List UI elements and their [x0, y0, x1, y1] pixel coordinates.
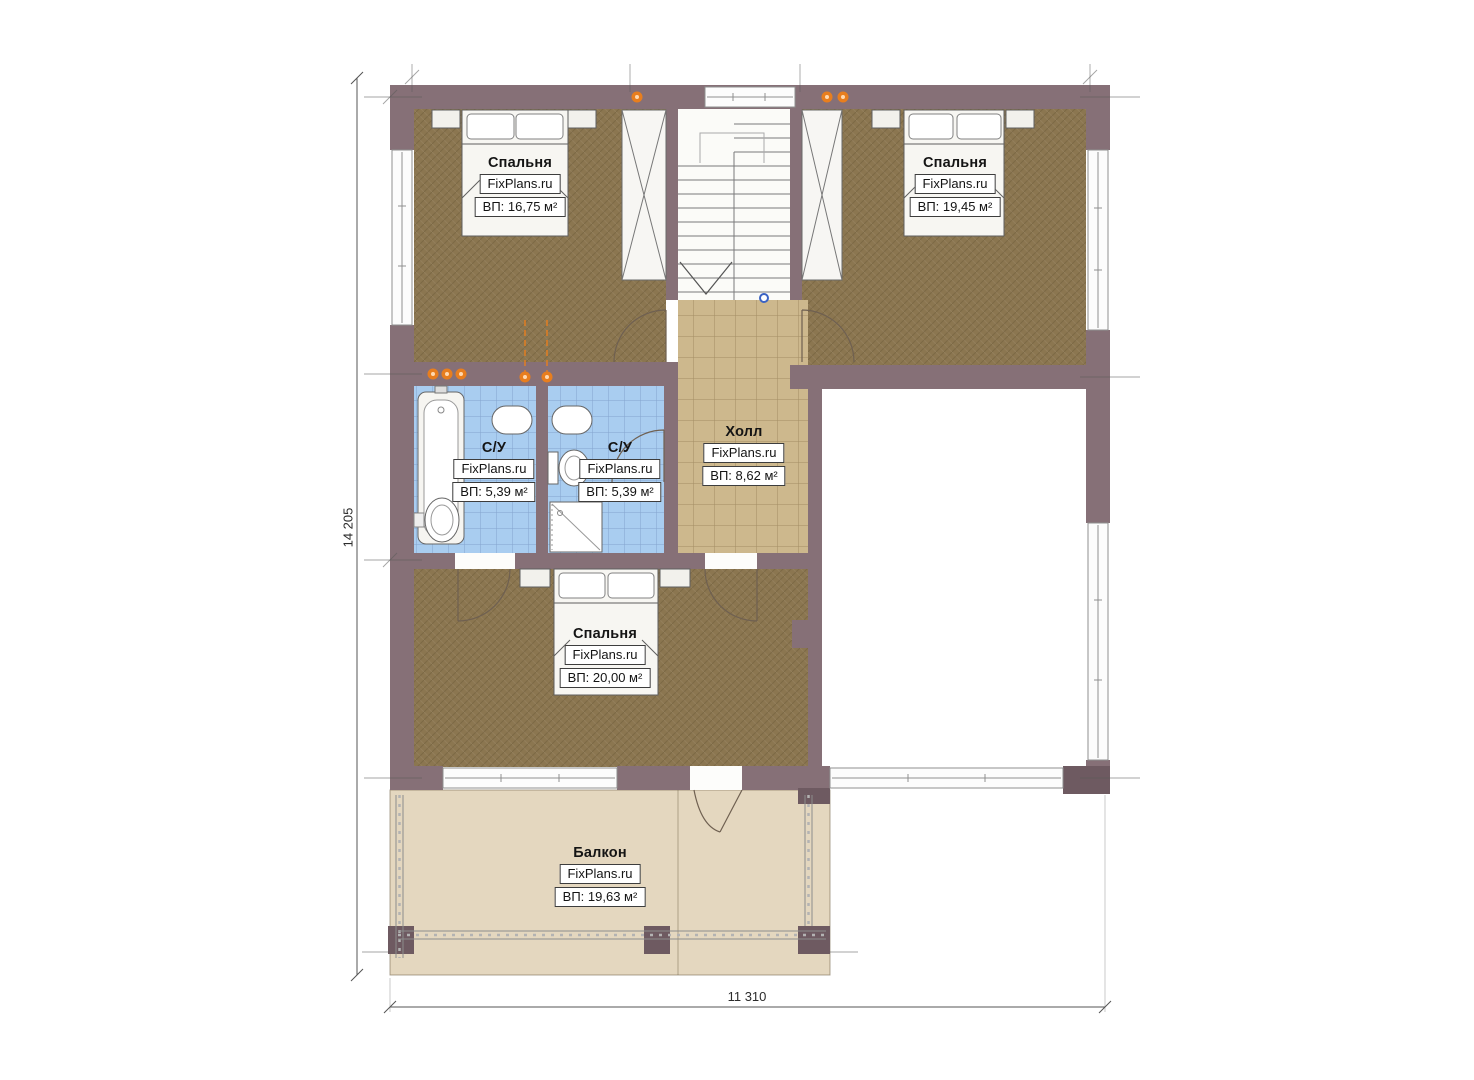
wall-mid-b	[515, 553, 705, 569]
window-right-bedroom	[1088, 150, 1108, 330]
wall-right-middle	[1086, 330, 1110, 523]
toilet	[548, 450, 589, 486]
stair-start-marker	[760, 294, 768, 302]
window-top-stair	[705, 87, 795, 107]
nightstand	[660, 569, 690, 587]
wall-pilaster	[792, 620, 822, 648]
balcony-post-left	[388, 926, 414, 954]
wall-bedroom-bottom-right	[808, 569, 822, 767]
sink-left-bath	[492, 406, 532, 434]
wardrobe-right	[802, 110, 842, 280]
sink-right-bath	[552, 406, 592, 434]
balcony-floor	[390, 790, 830, 975]
wall-stair-left	[666, 109, 678, 300]
wall-bathroom-hall	[664, 386, 678, 553]
nightstand	[568, 110, 596, 128]
window-void-bottom	[830, 768, 1063, 788]
wall-stair-right	[790, 109, 802, 300]
wall-hall-void	[808, 389, 822, 553]
wall-right-upper	[1086, 109, 1110, 150]
wardrobe-left	[622, 110, 666, 280]
wall-bathroom-divider	[536, 386, 548, 553]
floors-layer	[390, 109, 1086, 975]
shower	[550, 502, 602, 552]
wall-bottom-b	[617, 766, 690, 790]
nightstand	[432, 110, 460, 128]
wall-bottom-right-post	[1063, 766, 1110, 794]
balcony-post-top-right	[798, 788, 830, 804]
window-left-bedroom	[392, 150, 412, 325]
nightstand	[872, 110, 900, 128]
hall-floor	[678, 300, 808, 553]
nightstand	[520, 569, 550, 587]
wall-mid-a	[390, 553, 455, 569]
window-right-void	[1088, 523, 1108, 760]
wall-bottom-c	[742, 766, 830, 790]
window-bedroom-balcony	[443, 768, 617, 788]
wall-left-upper	[390, 109, 414, 150]
wall-bedroom-right-bottom	[790, 365, 1110, 389]
floor-plan-canvas: Спальня FixPlans.ru ВП: 16,75 м² Спальня…	[0, 0, 1474, 1080]
bathroom-door-opening	[455, 553, 515, 569]
balcony-post-right	[798, 926, 830, 954]
balcony-post-middle	[644, 926, 670, 954]
hall-door-opening	[705, 553, 757, 569]
wall-mid-c	[757, 553, 822, 569]
floor-plan-drawing	[0, 0, 1474, 1080]
nightstand	[1006, 110, 1034, 128]
balcony-door-opening	[690, 766, 742, 790]
